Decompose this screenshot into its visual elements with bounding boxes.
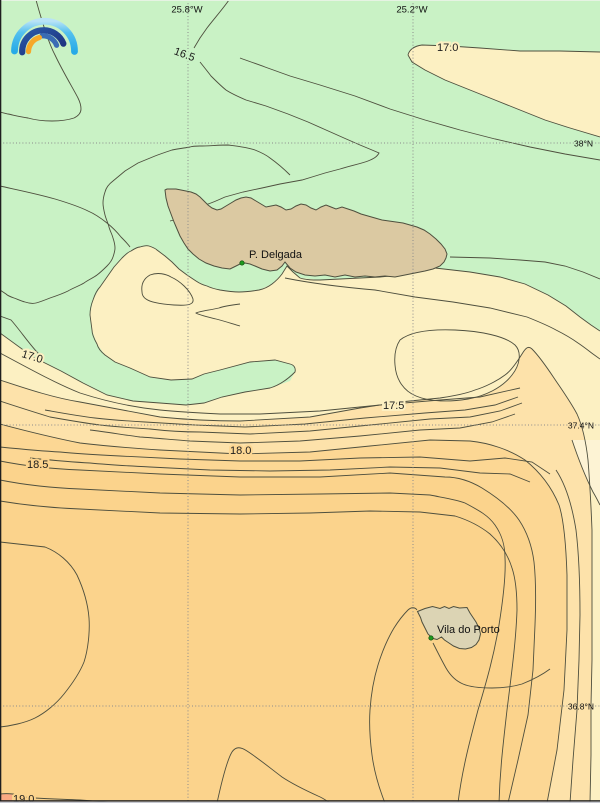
svg-text:Vila do Porto: Vila do Porto: [437, 624, 500, 636]
svg-text:25.8°W: 25.8°W: [171, 5, 202, 16]
svg-text:17.0: 17.0: [437, 42, 458, 54]
svg-text:37.4°N: 37.4°N: [568, 421, 594, 431]
svg-text:25.2°W: 25.2°W: [396, 5, 427, 16]
svg-text:36.8°N: 36.8°N: [568, 702, 594, 712]
svg-text:18.5: 18.5: [27, 459, 48, 471]
svg-text:P. Delgada: P. Delgada: [249, 249, 303, 261]
svg-text:17.5: 17.5: [383, 400, 404, 412]
svg-text:18.0: 18.0: [230, 445, 251, 457]
svg-text:38°N: 38°N: [574, 139, 593, 149]
